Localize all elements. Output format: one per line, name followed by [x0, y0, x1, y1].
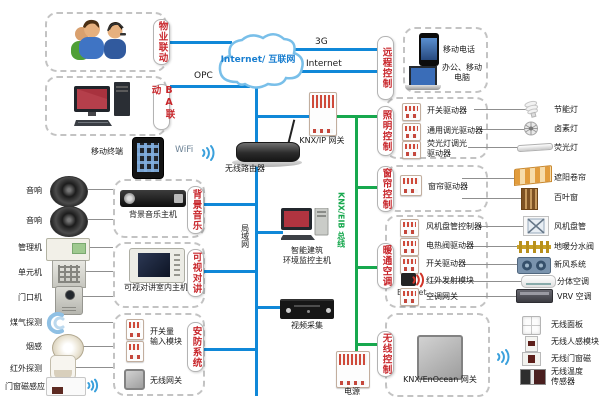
connector-music	[204, 203, 256, 206]
pill-intercom: 可视对讲	[187, 249, 204, 297]
dimmer-actuator-icon	[402, 123, 421, 141]
power-label: 电源	[339, 387, 365, 397]
video-capture-icon	[280, 299, 334, 319]
split-ac-icon	[521, 275, 556, 288]
hvac-device-5: 空调网关	[426, 292, 458, 302]
laptop-icon	[405, 66, 441, 90]
knx-bus-line	[355, 115, 358, 354]
lighting-device-3: 荧光灯调光 驱动器	[427, 139, 467, 158]
knx-ip-gateway-label: KNX/IP 网关	[294, 136, 350, 146]
wire-freshair	[464, 264, 519, 265]
peripheral-label-magnet: 门窗磁感应	[0, 382, 45, 392]
peripheral-label-door: 门口机	[6, 293, 42, 303]
connector-video	[255, 306, 282, 309]
io-module-icon-1	[126, 319, 144, 340]
security-gateway-label: 无线网关	[150, 376, 182, 386]
3g-label: 3G	[315, 37, 328, 48]
ac-gateway-icon	[400, 288, 419, 306]
wire-awning	[462, 178, 516, 179]
router-label: 无线路由器	[225, 164, 265, 174]
wireless-load-3: 无线门窗磁	[551, 354, 591, 364]
wire-mgmt	[86, 247, 113, 248]
connector-knxip	[255, 115, 309, 118]
knx-smart-building-diagram: { "colors": {"blue_line":"#1088d8","gree…	[0, 0, 600, 400]
knx-bus-label: KNX/EIB 总线	[336, 192, 346, 247]
wireless-load-2: 无线人感模块	[551, 337, 599, 347]
hvac-device-4: 红外发射模块	[426, 276, 474, 286]
wireless-load-4: 无线温度 传感器	[551, 367, 583, 386]
fancoil-controller-icon	[400, 219, 419, 237]
wire-unit	[84, 271, 113, 272]
security-wireless-gateway-icon	[124, 369, 145, 390]
peripheral-label-speaker2: 音响	[8, 216, 42, 226]
hvac-device-3: 开关驱动器	[426, 259, 466, 269]
connector-host	[255, 231, 283, 234]
speaker-icon-1	[50, 176, 88, 207]
smartphone-icon	[419, 33, 439, 66]
wireless-panel-icon	[522, 316, 541, 335]
hvac-device-2: 电热阀驱动器	[426, 241, 474, 251]
fancoil-cassette-icon	[523, 216, 549, 236]
knx-bus-to-wireless	[355, 343, 378, 346]
connector-security	[204, 348, 256, 351]
pill-lighting: 照明控制	[377, 106, 394, 156]
vrv-ac-icon	[516, 289, 553, 303]
music-host-label: 背景音乐主机	[124, 210, 182, 220]
hvac-load-3: 新风系统	[554, 260, 586, 270]
wire-blinds	[462, 198, 522, 199]
lan-label: 局域网	[240, 224, 250, 248]
fresh-air-unit-icon	[517, 257, 551, 274]
pill-property-linkage: 物业联动	[153, 19, 170, 65]
wifi-label: WiFi	[175, 145, 193, 156]
wire-doorstation	[81, 296, 113, 297]
enocean-gateway-icon	[417, 335, 463, 380]
cfl-lamp-icon	[522, 98, 542, 119]
pill-security: 安防系统	[187, 322, 204, 372]
hvac-load-2: 地暖分水阀	[554, 242, 594, 252]
peripheral-label-unit: 单元机	[6, 268, 42, 278]
wire-gas	[69, 322, 113, 323]
wire-cfl	[474, 109, 526, 110]
internet-label: Internet	[306, 59, 342, 70]
rf-signal-icon	[409, 270, 427, 290]
lighting-device-1: 开关驱动器	[427, 106, 467, 116]
enocean-gateway-label: KNX/EnOcean 网关	[399, 375, 481, 385]
people-icon	[70, 16, 134, 62]
intercom-label: 可视对讲室内主机	[123, 283, 189, 293]
pill-remote-control: 远程控制	[377, 36, 394, 100]
pill-ba-linkage: BA联动	[153, 84, 170, 130]
wire-halogen	[477, 129, 525, 130]
wireless-temp-sensor-icon	[520, 369, 546, 385]
switch-actuator-icon	[402, 103, 421, 121]
door-station-icon	[55, 286, 83, 315]
awning-icon	[514, 165, 552, 186]
intercom-screen-icon	[129, 248, 185, 283]
wireless-signal-icon	[494, 346, 512, 368]
wire-pir	[75, 367, 113, 368]
knx-ip-gateway-icon	[309, 92, 337, 136]
gas-detector-icon	[44, 312, 70, 334]
hvac-load-4: 分体空调	[557, 277, 589, 287]
tablet-icon	[132, 137, 164, 179]
speaker-icon-2	[50, 206, 88, 237]
peripheral-label-smoke: 烟感	[6, 342, 42, 352]
wire-fancoil	[477, 226, 525, 227]
cloud-label: Internet/ 互联网	[214, 55, 302, 66]
wire-fluorescent	[468, 147, 519, 148]
blinds-icon	[521, 188, 538, 210]
lighting-load-3: 荧光灯	[554, 143, 578, 153]
wire-smoke	[81, 346, 113, 347]
peripheral-label-mgmt: 管理机	[6, 243, 42, 253]
unit-station-icon	[52, 260, 86, 288]
management-unit-icon	[46, 238, 90, 261]
door-magnet-icon	[46, 377, 86, 396]
peripheral-label-pir: 红外探测	[0, 364, 42, 374]
hvac-load-5: VRV 空调	[557, 292, 592, 302]
pill-curtain: 窗帘控制	[377, 166, 394, 212]
music-host-icon	[120, 190, 186, 207]
knx-bus-to-hvac	[355, 266, 378, 269]
fluorescent-tube-icon	[517, 143, 553, 152]
pill-wireless: 无线控制	[377, 331, 394, 377]
power-supply-icon	[336, 351, 370, 388]
wireless-load-1: 无线面板	[551, 320, 583, 330]
video-capture-label: 视频采集	[286, 321, 328, 331]
curtain-load-2: 百叶窗	[554, 193, 578, 203]
fluorescent-dimmer-icon	[402, 141, 421, 159]
curtain-device-1: 窗帘驱动器	[428, 182, 468, 192]
wireless-door-magnet-icon	[522, 352, 541, 366]
wire-speaker2	[88, 219, 113, 220]
mobile-phone-label: 移动电话	[443, 45, 475, 55]
manifold-icon	[517, 240, 551, 254]
halogen-lamp-icon	[523, 121, 539, 136]
io-module-label: 开关量 输入模块	[150, 327, 182, 346]
connector-intercom	[204, 270, 256, 273]
monitor-host-icon	[281, 208, 335, 244]
pill-music: 背景音乐	[187, 186, 204, 234]
monitor-host-label: 智能建筑 环境监控主机	[276, 246, 338, 265]
wire-speaker1	[88, 189, 113, 190]
valve-actuator-icon	[400, 238, 419, 256]
curtain-load-1: 遮阳卷帘	[554, 173, 586, 183]
lighting-device-2: 通用调光驱动器	[427, 126, 483, 136]
office-computer-label: 办公、移动 电脑	[438, 63, 486, 82]
router-icon	[236, 142, 300, 162]
magnet-wireless-arcs-icon	[85, 376, 100, 395]
lighting-load-1: 节能灯	[554, 105, 578, 115]
pill-hvac: 暖通空调	[377, 243, 394, 289]
io-module-icon-2	[126, 341, 144, 362]
peripheral-label-speaker1: 音响	[8, 186, 42, 196]
curtain-actuator-icon	[400, 175, 422, 196]
mobile-terminal-label: 移动终端	[91, 147, 123, 157]
lighting-load-2: 卤素灯	[554, 124, 578, 134]
hvac-load-1: 风机盘管	[554, 222, 586, 232]
wifi-signal-icon	[199, 142, 217, 164]
hvac-device-1: 风机盘管控制器	[426, 222, 482, 232]
knx-bus-to-curtain	[355, 186, 378, 189]
ba-computer-icon	[74, 82, 134, 130]
opc-label: OPC	[194, 71, 213, 82]
wireless-presence-icon	[525, 336, 538, 352]
peripheral-label-gas: 煤气探测	[0, 318, 42, 328]
